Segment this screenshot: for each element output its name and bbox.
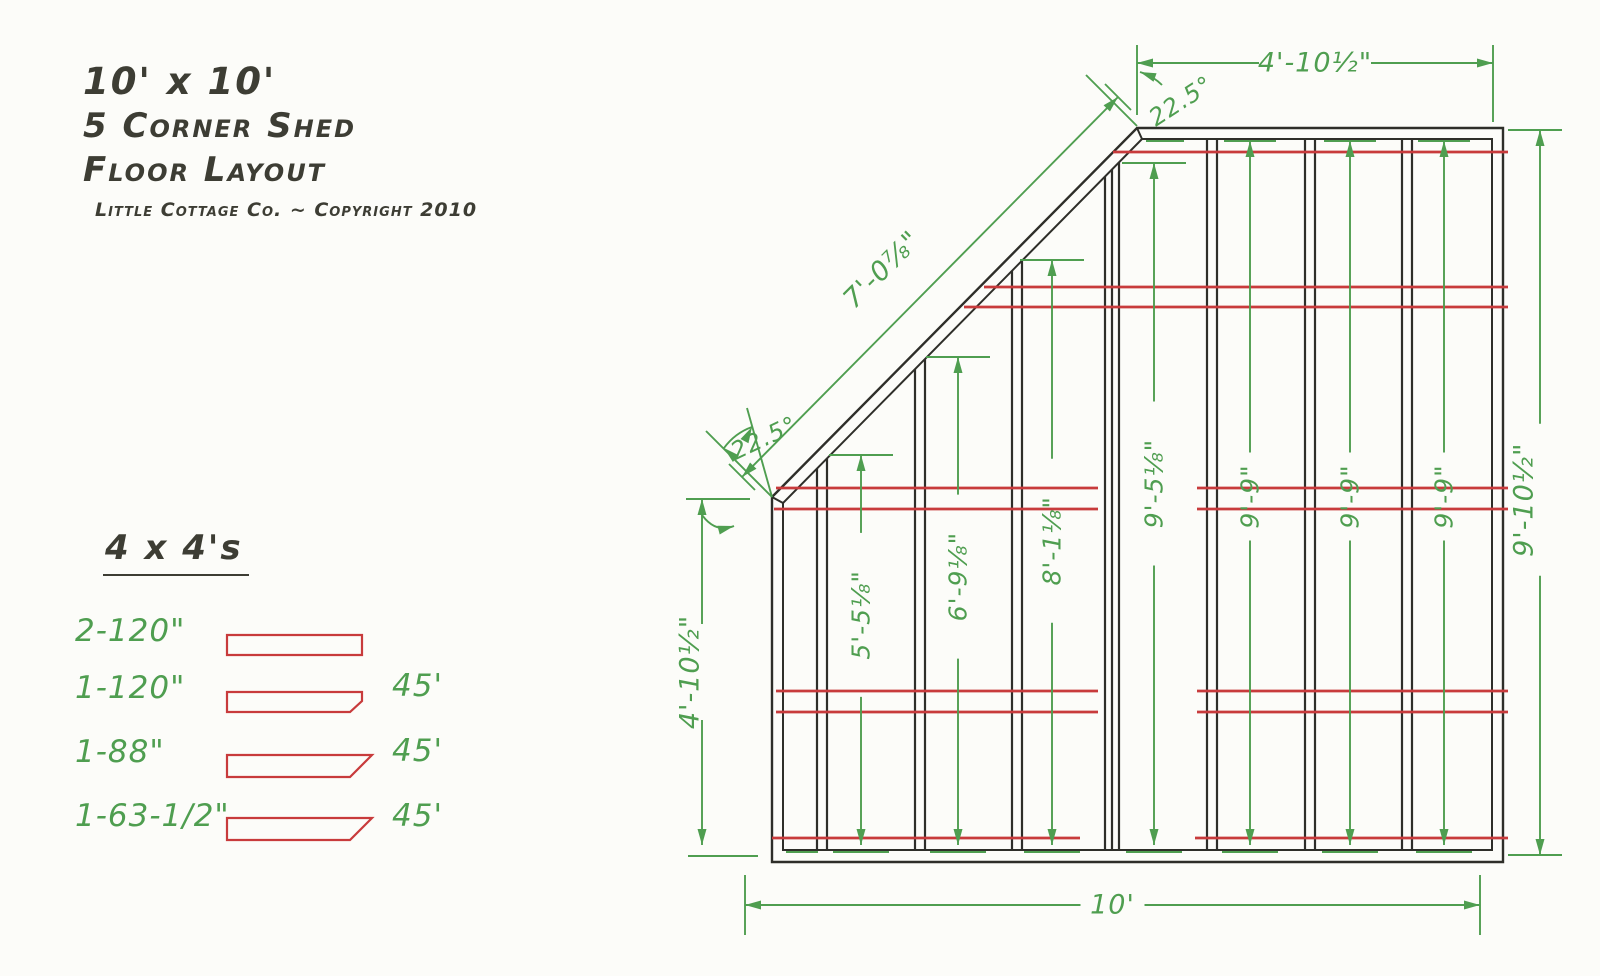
dimension: 9'-9" <box>1236 141 1265 845</box>
dim-label: 6'-9⅛" <box>944 532 973 621</box>
dim-arrow <box>698 829 707 845</box>
angle-annotation: 22.5° <box>1086 70 1218 132</box>
dim-arrow <box>1477 59 1493 68</box>
dimension: 4'-10½" <box>1137 48 1493 79</box>
dim-label: 7'-0⅞" <box>837 225 927 315</box>
dim-arrow <box>1150 829 1159 845</box>
lumber-shape <box>227 635 362 655</box>
legend-row-label: 1-63-1/2" <box>75 798 230 834</box>
dim-arrow <box>954 357 963 373</box>
legend-row-label: 2-120" <box>75 613 185 649</box>
dim-arrow <box>1464 901 1480 910</box>
dim-label: 10' <box>1090 890 1135 921</box>
angle-arrow <box>717 526 734 535</box>
dim-label: 8'-1⅛" <box>1038 496 1067 585</box>
dim-arrow <box>698 499 707 515</box>
frame-outline <box>772 128 1503 862</box>
dim-label: 9'-5⅛" <box>1140 439 1169 528</box>
lumber-shape <box>227 692 362 712</box>
frame-miter <box>772 497 783 503</box>
dimension: 9'-9" <box>1430 141 1459 845</box>
legend-row-label: 1-120" <box>75 670 185 706</box>
dimension: 9'-5⅛" <box>1140 163 1169 845</box>
sheet-title-name: 5 Corner Shed <box>83 106 356 146</box>
dim-label: 9'-9" <box>1430 464 1459 528</box>
legend-row-note: 45' <box>392 798 443 834</box>
copyright-byline: Little Cottage Co. ~ Copyright 2010 <box>95 199 477 221</box>
dimension: 4'-10½" <box>675 499 707 845</box>
dim-arrow <box>1536 130 1545 146</box>
dim-label: 9'-9" <box>1236 464 1265 528</box>
angle-arrow <box>1140 72 1157 82</box>
frame-outer-edge <box>772 128 1503 862</box>
dim-arrow <box>1150 163 1159 179</box>
dim-arrow <box>1536 839 1545 855</box>
dim-arrow <box>1048 260 1057 276</box>
dim-label: 9'-10½" <box>1509 443 1540 557</box>
dim-label: 4'-10½" <box>675 615 706 729</box>
floor-plan-sheet: 4'-10½"10'9'-10½"4'-10½"7'-0⅞"5'-5⅛"6'-9… <box>0 0 1600 976</box>
dim-arrow <box>1346 141 1355 157</box>
dim-label: 9'-9" <box>1336 464 1365 528</box>
legend-heading: 4 x 4's <box>103 528 249 576</box>
dimension: 9'-9" <box>1336 141 1365 845</box>
dim-arrow <box>857 455 866 471</box>
legend-row-note: 45' <box>392 668 443 704</box>
dimension: 5'-5⅛" <box>847 455 876 845</box>
legend-shapes <box>227 635 372 840</box>
dim-label: 5'-5⅛" <box>847 570 876 659</box>
floor-plan-drawing: 4'-10½"10'9'-10½"4'-10½"7'-0⅞"5'-5⅛"6'-9… <box>0 0 1600 976</box>
dim-arrow <box>1137 59 1153 68</box>
dim-arrow <box>1246 141 1255 157</box>
dimension: 9'-10½" <box>1509 130 1545 855</box>
dim-arrow <box>745 901 761 910</box>
sheet-title-type: Floor Layout <box>83 150 326 190</box>
legend-row-note: 45' <box>392 733 443 769</box>
dimension: 6'-9⅛" <box>944 357 973 845</box>
lumber-shape <box>227 818 372 840</box>
angle-ray <box>1086 75 1137 126</box>
lumber-shape <box>227 755 372 777</box>
dim-label: 4'-10½" <box>1258 48 1372 79</box>
dimensions: 4'-10½"10'9'-10½"4'-10½"7'-0⅞"5'-5⅛"6'-9… <box>675 48 1545 921</box>
dimension: 8'-1⅛" <box>1038 260 1067 845</box>
frame-miter <box>1137 128 1142 139</box>
dimension: 10' <box>745 890 1480 921</box>
angle-label: 22.5° <box>726 410 802 465</box>
dim-arrow <box>1440 141 1449 157</box>
legend-row-label: 1-88" <box>75 734 165 770</box>
sheet-title-size: 10' x 10' <box>83 60 276 103</box>
